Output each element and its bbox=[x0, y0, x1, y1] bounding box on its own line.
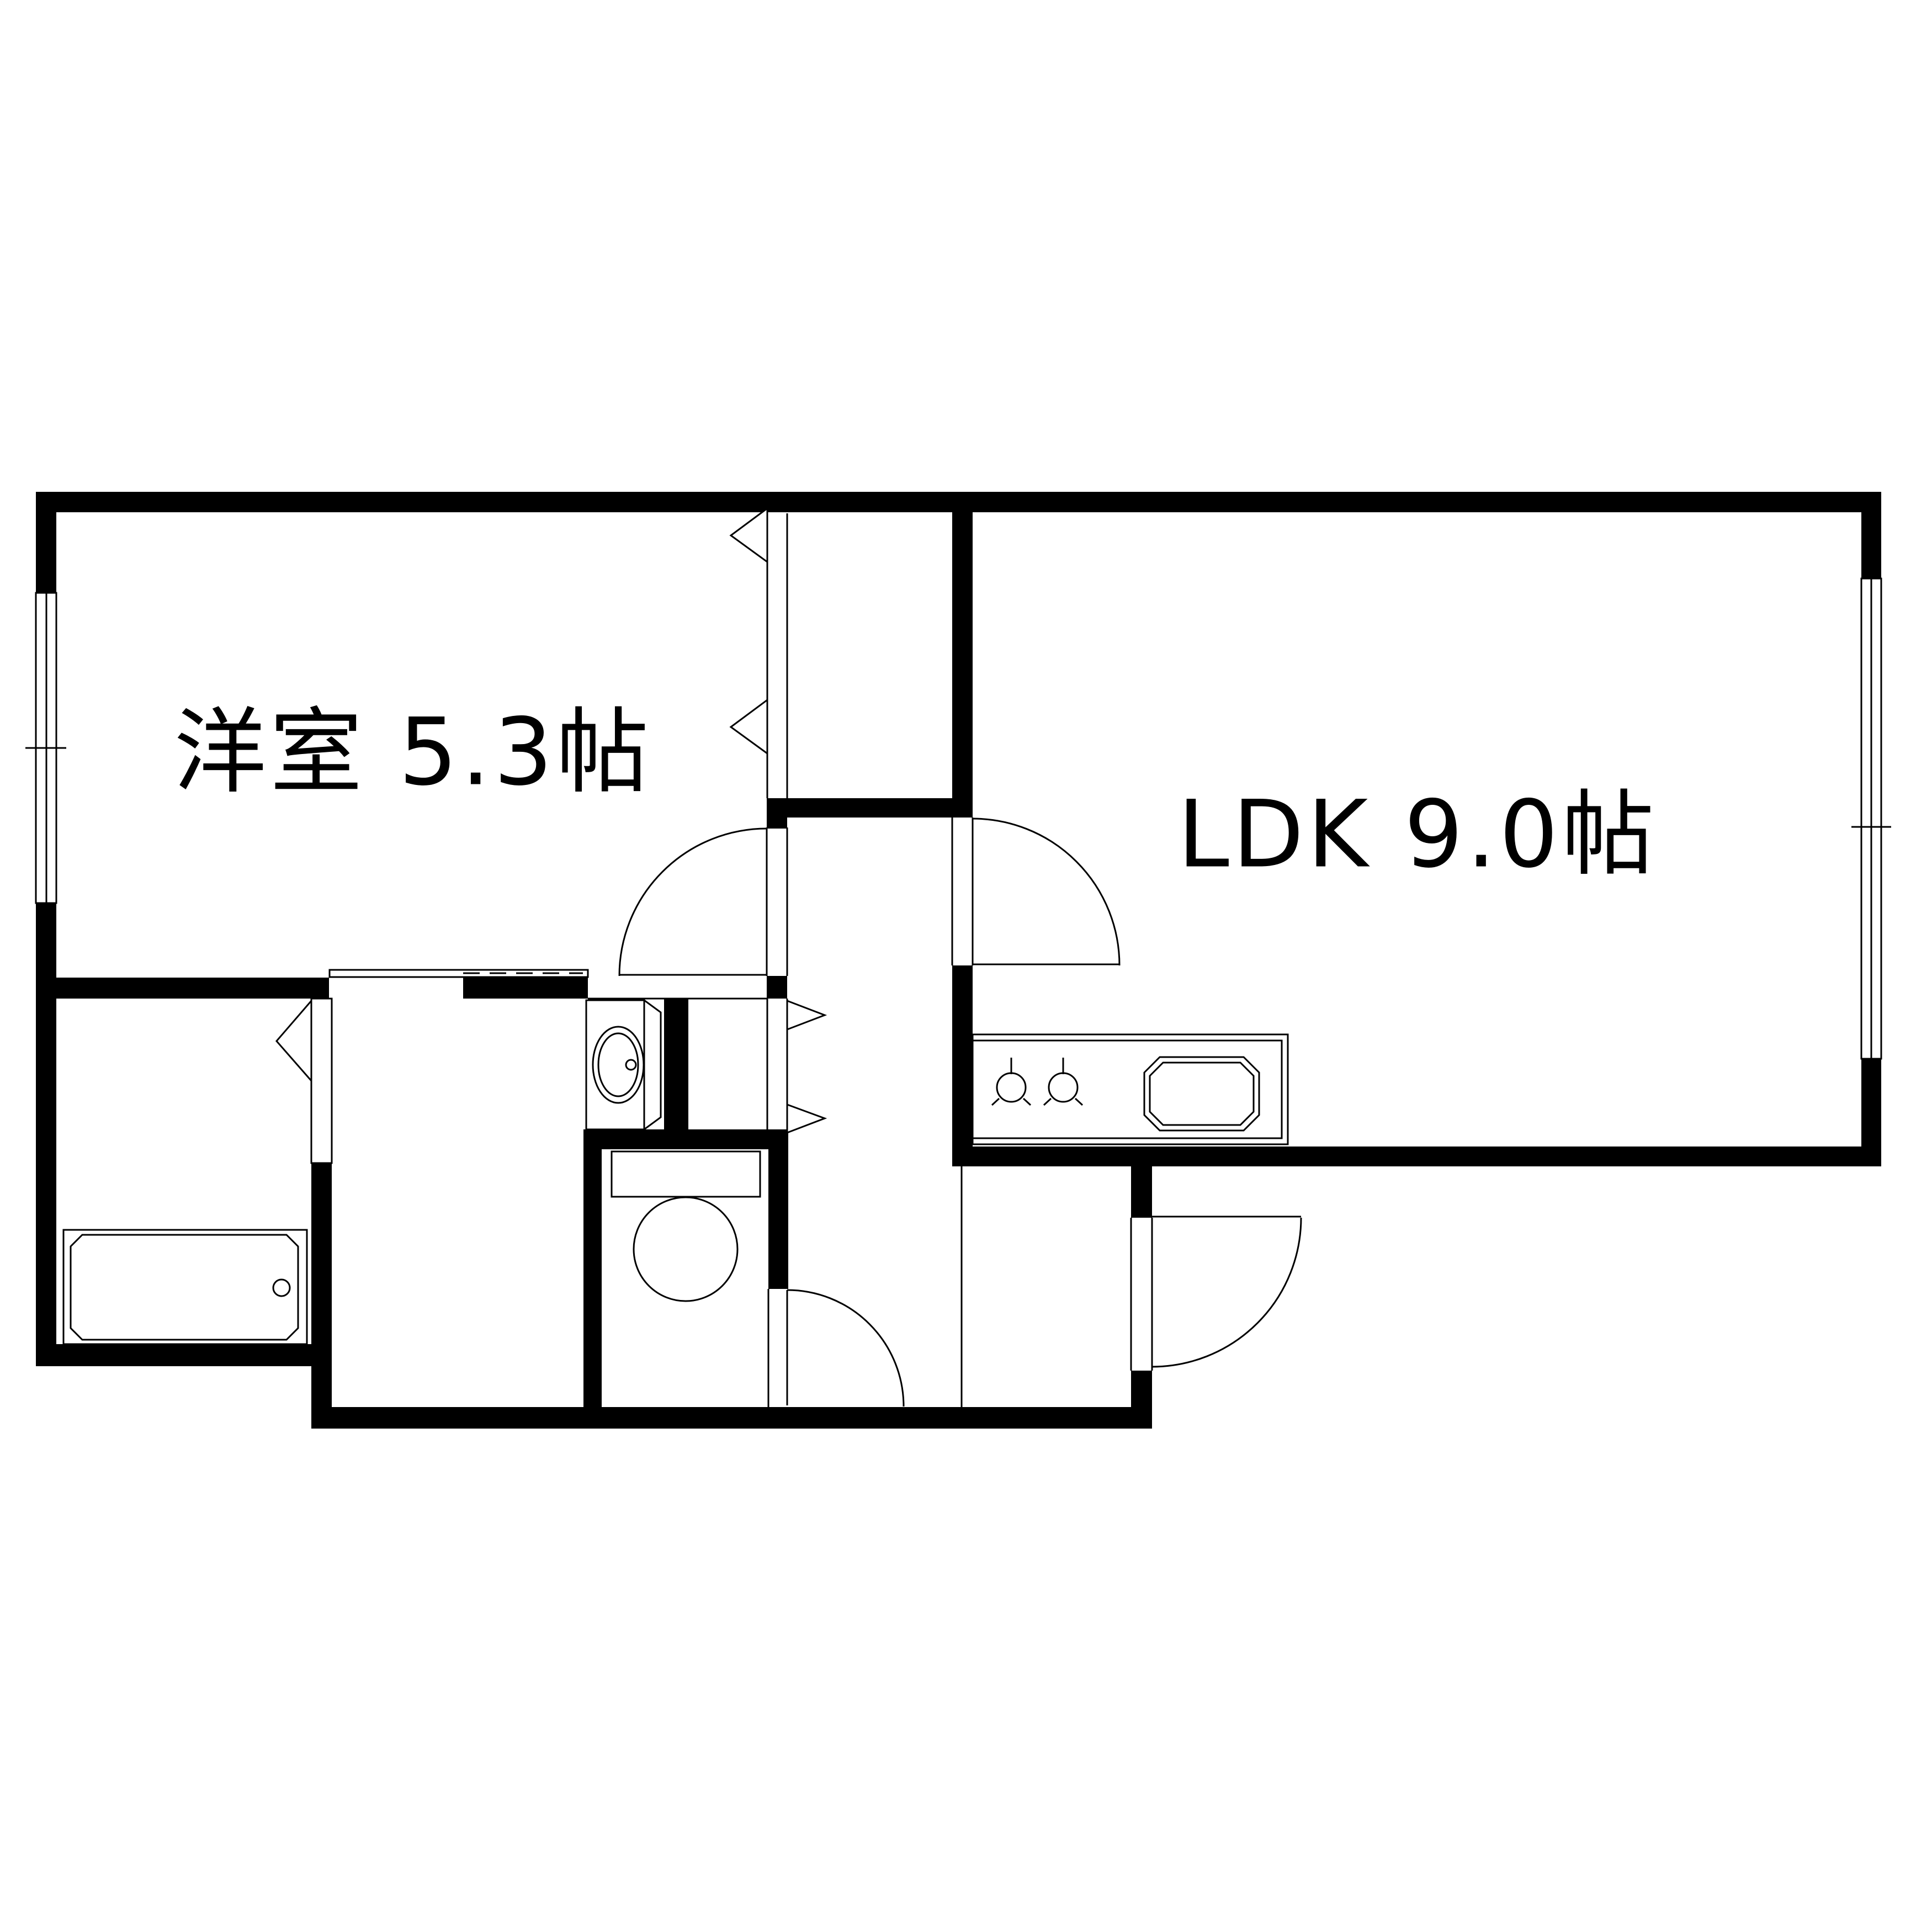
stove-burner-1 bbox=[997, 1073, 1026, 1102]
western-door-swing-arc bbox=[619, 829, 767, 976]
outer-wall-right-upper bbox=[1861, 492, 1881, 578]
floor-plan: 洋室 5.3帖 LDK 9.0帖 bbox=[0, 0, 1932, 1932]
toilet-left-wall bbox=[583, 1149, 602, 1407]
entry-door-stub-top bbox=[1131, 1166, 1152, 1218]
outer-wall-left-upper bbox=[36, 492, 56, 593]
closet-right-wall bbox=[952, 512, 973, 818]
entry-door-stub-bottom bbox=[1131, 1371, 1152, 1407]
bathtub-outer bbox=[63, 1230, 307, 1344]
ldk-left-wall-lower bbox=[952, 965, 973, 1166]
stove-burner-2 bbox=[1049, 1073, 1078, 1102]
hall-closet-triangle-1 bbox=[787, 1001, 825, 1029]
closet-folding-door-triangle-2 bbox=[731, 700, 767, 753]
hall-closet-triangle-2 bbox=[787, 1105, 825, 1133]
ldk-bottom-wall bbox=[953, 1147, 1881, 1166]
door-junction-wall bbox=[767, 976, 787, 999]
room-label-western-room: 洋室 5.3帖 bbox=[174, 677, 652, 811]
vanity-sink-inner bbox=[598, 1033, 638, 1096]
stove-burner-1-hook-r bbox=[1023, 1098, 1031, 1105]
bathtub-inner bbox=[71, 1235, 298, 1340]
closet-bottom-wall bbox=[767, 798, 973, 818]
ldk-door-swing-arc bbox=[973, 819, 1119, 965]
vanity-faucet bbox=[626, 1060, 636, 1070]
bathtub-drain bbox=[273, 1280, 290, 1296]
western-room-bottom-wall-a bbox=[56, 978, 329, 999]
bathroom-bottom-wall bbox=[36, 1344, 332, 1366]
closet-folding-door-triangle-1 bbox=[731, 508, 767, 562]
toilet-right-wall bbox=[768, 1149, 788, 1289]
stove-burner-2-hook-r bbox=[1075, 1098, 1082, 1105]
western-room-bottom-wall-b bbox=[463, 978, 588, 999]
bathroom-door-triangle bbox=[277, 1001, 311, 1081]
vanity-closet-wall bbox=[664, 999, 688, 1129]
toilet-top-wall bbox=[583, 1129, 788, 1149]
outer-wall-top bbox=[36, 492, 1881, 512]
stove-burner-1-hook-l bbox=[992, 1098, 999, 1105]
kitchen-counter-inner bbox=[973, 1041, 1282, 1138]
outer-wall-left-lower bbox=[36, 903, 56, 1366]
bath-washroom-wall bbox=[311, 1163, 332, 1407]
bathroom-door-leaf bbox=[311, 999, 332, 1163]
toilet-door-swing-arc bbox=[787, 1290, 904, 1406]
kitchen-counter-outer bbox=[973, 1034, 1288, 1144]
floor-plan-svg bbox=[0, 0, 1932, 1932]
toilet-bowl bbox=[634, 1197, 737, 1301]
toilet-tank bbox=[612, 1151, 760, 1197]
entry-door-swing-arc bbox=[1152, 1218, 1301, 1367]
kitchen-sink-outer bbox=[1144, 1057, 1259, 1130]
room-label-ldk: LDK 9.0帖 bbox=[1177, 760, 1658, 894]
kitchen-sink-inner bbox=[1150, 1063, 1254, 1125]
lower-block-bottom-wall bbox=[311, 1407, 1152, 1429]
vanity-front-panel bbox=[644, 1000, 661, 1129]
stove-burner-2-hook-l bbox=[1044, 1098, 1051, 1105]
